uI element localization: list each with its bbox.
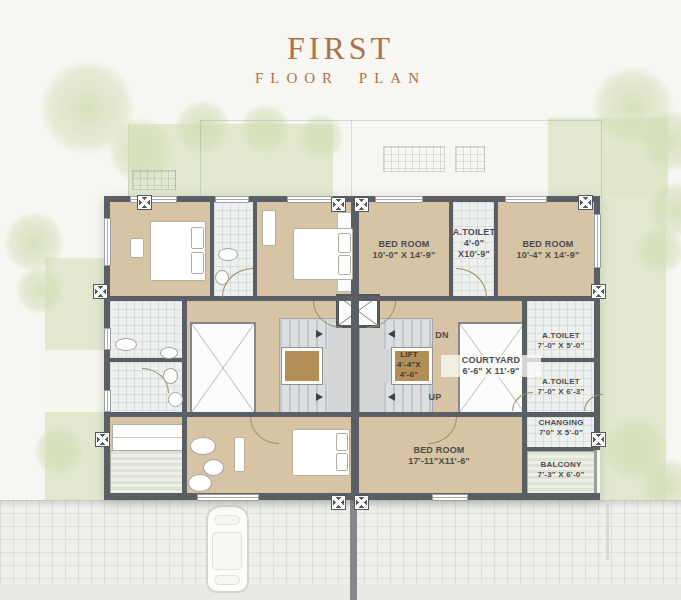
window <box>104 328 111 350</box>
room-dims: 4'-0" <box>444 238 504 249</box>
lift-name: LIFT <box>389 350 429 360</box>
window <box>197 494 259 501</box>
compound-wall <box>350 500 357 600</box>
balcony-left-unit <box>110 450 185 498</box>
car-trunk <box>214 575 240 585</box>
window <box>505 196 547 203</box>
stair-direction-arrow <box>388 393 395 401</box>
tree <box>16 266 64 314</box>
room-label-bedroom-bottom: BED ROOM 17'-11"X11'-6" <box>389 445 489 467</box>
column-marker-icon <box>332 496 345 509</box>
car-hood <box>214 515 240 525</box>
wall-internal <box>210 202 214 296</box>
room-dims: 7'-3" X 6'-0" <box>520 470 602 480</box>
window <box>375 196 423 203</box>
dn-text: DN <box>428 330 456 341</box>
column-marker-icon <box>96 433 109 446</box>
toilet-wc <box>115 338 137 351</box>
wall-internal <box>253 202 257 296</box>
room-name: BED ROOM <box>496 239 600 250</box>
round-chair <box>190 437 216 455</box>
room-name: BED ROOM <box>389 445 489 456</box>
wall-internal <box>527 447 594 451</box>
title-block: FIRST FLOOR PLAN <box>0 30 681 87</box>
tree <box>34 426 84 476</box>
page-title: FIRST <box>0 30 681 67</box>
page-subtitle: FLOOR PLAN <box>0 70 681 87</box>
ghost-plan-counter <box>132 170 176 190</box>
staircase-left-unit <box>279 318 353 414</box>
round-chair <box>188 474 212 492</box>
bench-seat <box>112 424 184 451</box>
toilet-wc <box>215 270 229 285</box>
stair-direction-arrow <box>316 330 323 338</box>
tree <box>636 226 681 274</box>
stair-label-down: DN <box>428 330 456 341</box>
bed-pillow <box>336 453 348 471</box>
room-label-toilet-top: A.TOILET 4'-0" X10'-9" <box>444 227 504 260</box>
car-top-view <box>206 505 249 593</box>
round-table <box>203 459 224 476</box>
bed-pillow <box>191 227 204 249</box>
column-marker-icon <box>355 198 368 211</box>
stair-label-up: UP <box>421 392 449 403</box>
window <box>215 196 249 203</box>
console-table <box>234 437 245 472</box>
window <box>287 196 333 203</box>
ghost-plan-line <box>351 120 352 196</box>
floor-plan-canvas: BED ROOM 10'-0" X 14'-9" A.TOILET 4'-0" … <box>0 0 681 600</box>
ghost-plan-counter <box>455 146 485 172</box>
column-marker-icon <box>138 196 151 209</box>
room-dims: 7'0" X 5'-0" <box>520 428 602 438</box>
toilet-wc <box>168 392 183 407</box>
lift-shaft-left-unit <box>282 348 322 384</box>
wash-basin <box>218 248 238 261</box>
room-name: BED ROOM <box>352 239 456 250</box>
lift-dims: 4'-4"X <box>389 360 429 370</box>
column-marker-icon <box>355 496 368 509</box>
bench-line <box>113 437 183 438</box>
ghost-plan-counter <box>383 146 445 172</box>
room-label-courtyard: COURTYARD 6'-6" X 11'-9" <box>441 355 541 377</box>
bed-pillow <box>338 255 351 275</box>
room-name: CHANGING <box>520 418 602 428</box>
tree <box>4 212 64 272</box>
window <box>104 218 111 266</box>
column-marker-icon <box>592 285 605 298</box>
room-label-bedroom-top-left: BED ROOM 10'-0" X 14'-9" <box>352 239 456 261</box>
wash-basin <box>160 347 178 359</box>
window <box>432 494 468 501</box>
room-name: A.TOILET <box>523 377 599 387</box>
room-label-toilet-mid-lower: A.TOILET 7'-0" X 6'-3" <box>523 377 599 397</box>
room-name: COURTYARD <box>441 355 541 366</box>
bed-pillow <box>336 433 348 451</box>
room-dims: X10'-9" <box>444 249 504 260</box>
room-dims: 7'-0" X 6'-3" <box>523 387 599 397</box>
window <box>104 390 111 412</box>
room-name: A.TOILET <box>444 227 504 238</box>
wardrobe <box>130 238 144 258</box>
cross-mark <box>192 324 254 412</box>
up-text: UP <box>421 392 449 403</box>
room-dims: 7'-0" X 5'-0" <box>523 341 599 351</box>
bed-pillow <box>191 252 204 274</box>
courtyard-left-unit <box>190 322 256 414</box>
wash-basin <box>163 368 178 384</box>
room-label-changing: CHANGING 7'0" X 5'-0" <box>520 418 602 438</box>
room-dims: 10'-4" X 14'-9" <box>496 250 600 261</box>
column-marker-icon <box>579 196 592 209</box>
paving-joint <box>606 500 609 560</box>
room-label-balcony: BALCONY 7'-3" X 6'-0" <box>520 460 602 480</box>
car-roof <box>212 532 242 570</box>
bed-pillow <box>338 233 351 253</box>
room-dims: 6'-6" X 11'-9" <box>441 366 541 377</box>
column-marker-icon <box>94 285 107 298</box>
room-dims: 17'-11"X11'-6" <box>389 456 489 467</box>
lift-dims: 4'-6" <box>389 370 429 380</box>
room-name: A.TOILET <box>523 331 599 341</box>
lift-label: LIFT 4'-4"X 4'-6" <box>389 350 429 380</box>
column-marker-icon <box>332 198 345 211</box>
room-name: BALCONY <box>520 460 602 470</box>
wardrobe <box>262 210 276 246</box>
garden-path-left <box>45 350 105 412</box>
paving-bottom-band <box>0 584 681 600</box>
stair-direction-arrow <box>388 330 395 338</box>
room-dims: 10'-0" X 14'-9" <box>352 250 456 261</box>
room-label-bedroom-top-right: BED ROOM 10'-4" X 14'-9" <box>496 239 600 261</box>
stair-direction-arrow <box>316 393 323 401</box>
room-label-toilet-mid-upper: A.TOILET 7'-0" X 5'-0" <box>523 331 599 351</box>
